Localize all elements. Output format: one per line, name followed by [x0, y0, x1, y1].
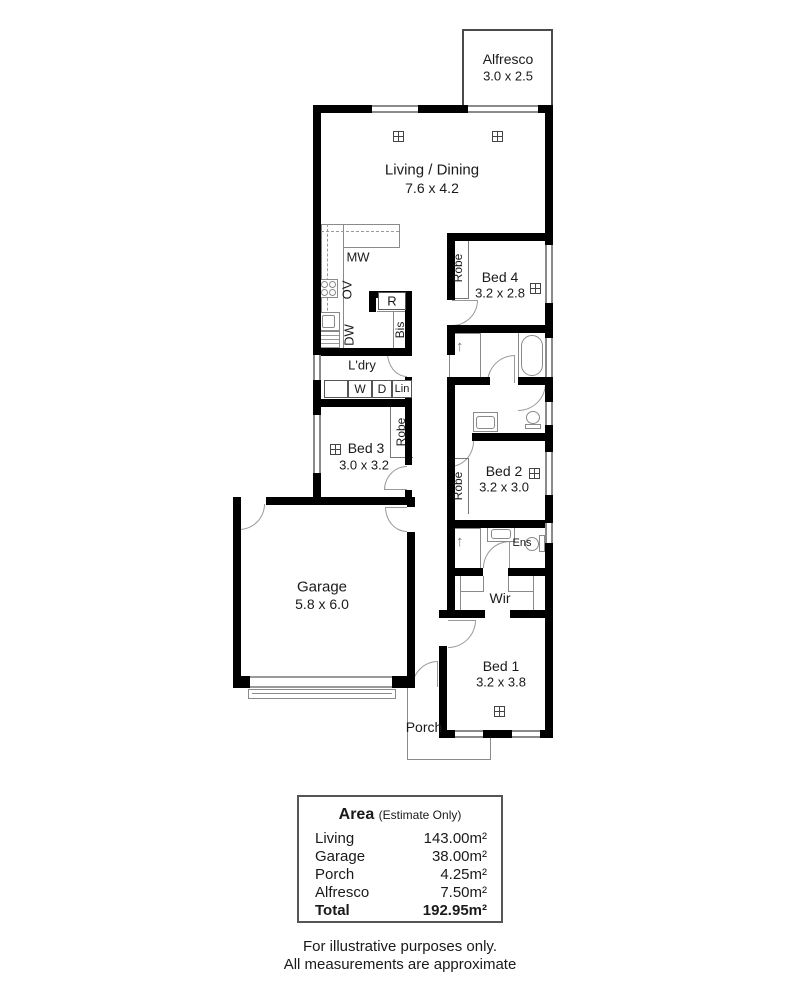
ceiling-light-icon: [330, 444, 341, 455]
vanity-basin-icon: [491, 529, 511, 539]
door-arc-laundry: [387, 353, 407, 377]
window: [512, 730, 540, 738]
wall: [545, 543, 553, 738]
wall: [233, 676, 250, 688]
wall: [447, 520, 553, 528]
wall: [483, 730, 512, 738]
area-title-text: Area: [339, 806, 375, 823]
washer-label: W: [354, 382, 365, 396]
wall: [447, 233, 553, 241]
garage-door-panel: [248, 689, 396, 699]
window: [545, 452, 553, 495]
window: [545, 523, 553, 543]
wall: [313, 105, 372, 113]
ceiling-light-icon: [530, 283, 541, 294]
window: [313, 355, 321, 380]
robe-bed3-label: Robe: [394, 418, 408, 447]
dryer-label: D: [378, 382, 387, 396]
cooktop-burner-icon: [321, 289, 328, 296]
door-arc-wc: [518, 383, 546, 411]
wall: [439, 610, 455, 618]
sink-bowl-icon: [322, 315, 335, 328]
dishwasher-label: DW: [342, 324, 357, 346]
area-table-title: Area (Estimate Only): [299, 806, 501, 824]
wall: [545, 495, 553, 523]
sliding-door: [468, 105, 538, 113]
living-dining-label: Living / Dining: [385, 162, 479, 179]
wall: [233, 497, 241, 676]
porch-outline: [407, 759, 491, 760]
alfresco-dims: 3.0 x 2.5: [483, 69, 533, 84]
ceiling-light-icon: [393, 131, 404, 142]
wall: [545, 303, 553, 338]
oven-label: OV: [340, 281, 355, 300]
robe-bed2-label: Robe: [451, 472, 465, 501]
wall: [313, 105, 321, 355]
bed2-label: Bed 2: [486, 463, 523, 479]
wardrobe-shelves: [460, 591, 484, 592]
porch-outline: [490, 737, 491, 760]
ens-label: Ens: [513, 537, 532, 549]
wall: [369, 291, 376, 312]
robe-bed4-label: Robe: [451, 254, 465, 283]
wall: [472, 433, 553, 441]
area-row-value: 7.50m²: [440, 884, 487, 902]
bed4-dims: 3.2 x 2.8: [475, 286, 525, 301]
wall: [447, 325, 553, 333]
laundry-label: L'dry: [348, 358, 376, 373]
shower-arrow-icon: ↑: [456, 338, 464, 355]
wall: [447, 568, 483, 576]
wall: [407, 497, 415, 507]
ceiling-light-icon: [529, 468, 540, 479]
wardrobe-shelves: [460, 576, 461, 610]
microwave-label: MW: [346, 250, 369, 265]
wall: [447, 433, 450, 441]
window: [455, 730, 483, 738]
table-row: Porch 4.25m²: [299, 866, 501, 884]
ceiling-light-icon: [494, 706, 505, 717]
wall: [447, 377, 490, 385]
area-total-label: Total: [315, 902, 350, 920]
ceiling-light-icon: [492, 131, 503, 142]
garage-door-panel-line: [252, 693, 392, 694]
wir-label: Wir: [490, 590, 511, 606]
wall: [545, 377, 553, 402]
living-dining-dims: 7.6 x 4.2: [405, 180, 459, 196]
fridge-label: R: [387, 294, 396, 309]
area-row-label: Living: [315, 830, 354, 848]
wardrobe-shelves: [483, 576, 484, 592]
window: [372, 105, 418, 113]
door-arc-garage-external: [239, 504, 265, 530]
area-table: Area (Estimate Only) Living 143.00m² Gar…: [297, 795, 503, 923]
wall: [447, 383, 455, 618]
area-row-label: Porch: [315, 866, 354, 884]
bed2-dims: 3.2 x 3.0: [479, 480, 529, 495]
cooktop-burner-icon: [329, 281, 336, 288]
wall: [418, 105, 468, 113]
shower-arrow-icon: ↑: [456, 533, 464, 550]
bathtub-bowl-icon: [521, 335, 543, 376]
bed1-dims: 3.2 x 3.8: [476, 675, 526, 690]
bed3-label: Bed 3: [348, 440, 385, 456]
table-row: Alfresco 7.50m²: [299, 884, 501, 902]
area-row-value: 4.25m²: [440, 866, 487, 884]
window: [545, 245, 553, 303]
wardrobe-shelves: [533, 576, 534, 610]
wall: [545, 425, 553, 452]
window: [545, 338, 553, 377]
window: [545, 402, 553, 425]
door-arc-bathroom: [487, 355, 515, 383]
garage-door-opening: [250, 676, 392, 688]
footer-line-1: For illustrative purposes only.: [0, 938, 800, 955]
table-row: Living 143.00m²: [299, 830, 501, 848]
window: [313, 415, 321, 473]
dishwasher-icon: [319, 331, 340, 349]
alfresco-label: Alfresco: [483, 51, 534, 67]
wall: [545, 105, 553, 245]
table-row-total: Total 192.95m²: [299, 902, 501, 920]
wardrobe-shelves: [509, 591, 534, 592]
door-arc-ensuite: [483, 541, 510, 568]
bed1-label: Bed 1: [483, 658, 520, 674]
table-row: Garage 38.00m²: [299, 848, 501, 866]
cooktop-burner-icon: [321, 281, 328, 288]
porch-label: Porch: [406, 719, 443, 735]
bed3-dims: 3.0 x 3.2: [339, 458, 389, 473]
area-row-value: 143.00m²: [424, 830, 487, 848]
wall: [313, 348, 412, 356]
area-row-value: 38.00m²: [432, 848, 487, 866]
door-arc-entry: [412, 661, 438, 687]
vanity-basin-icon: [476, 416, 495, 429]
garage-label: Garage: [297, 579, 347, 596]
wall: [313, 399, 412, 407]
area-subtitle-text: (Estimate Only): [379, 808, 462, 822]
floor-plan: ↑ ↑ Alfresco 3.0 x 2.5 Living / Dining 7…: [0, 0, 800, 1000]
wall: [392, 676, 415, 688]
door-arc-bed4: [452, 300, 478, 326]
area-row-label: Garage: [315, 848, 365, 866]
garage-dims: 5.8 x 6.0: [295, 596, 349, 612]
wall: [266, 497, 415, 505]
toilet-icon: [526, 411, 540, 424]
wall: [407, 532, 415, 676]
toilet-cistern-icon: [525, 424, 541, 429]
laundry-tub-icon: [324, 380, 348, 398]
door-arc-garage-internal: [385, 507, 407, 532]
overhead-cupboard-line: [321, 231, 399, 232]
door-arc-bed1: [448, 620, 476, 648]
wall: [313, 380, 321, 415]
area-row-label: Alfresco: [315, 884, 369, 902]
cooktop-burner-icon: [329, 289, 336, 296]
bis-label: Bis: [393, 322, 407, 339]
area-total-value: 192.95m²: [423, 902, 487, 920]
footer-line-2: All measurements are approximate: [0, 956, 800, 973]
bed4-label: Bed 4: [482, 269, 519, 285]
linen-label: Lin: [395, 383, 410, 395]
